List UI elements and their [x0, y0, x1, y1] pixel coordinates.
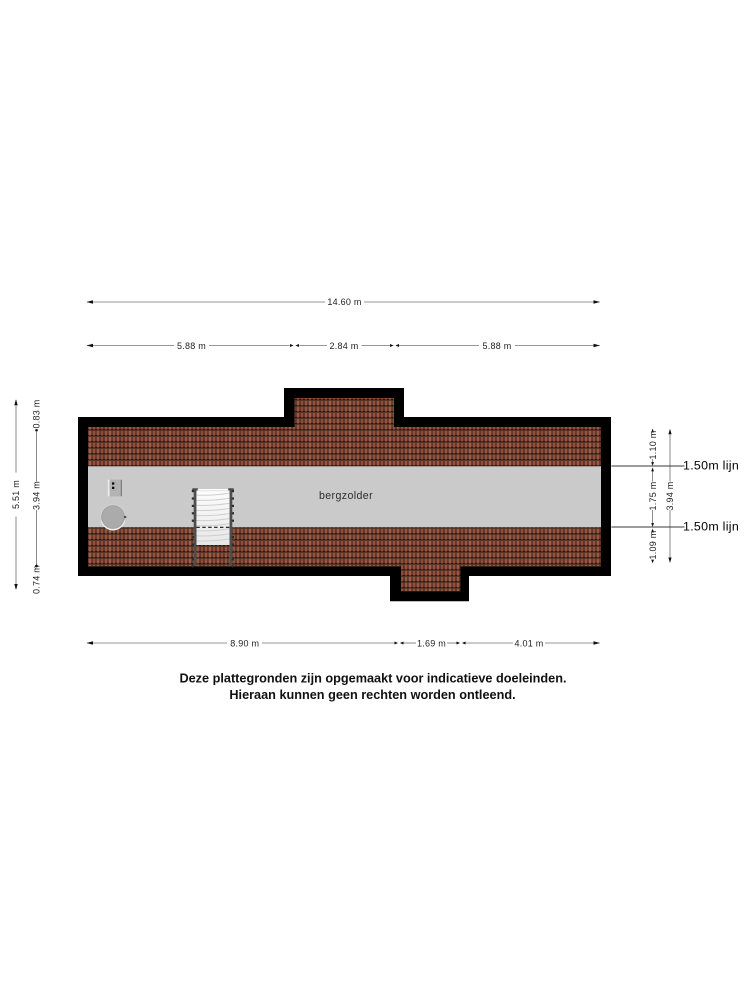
svg-text:1.09 m: 1.09 m [648, 530, 658, 559]
svg-text:1.50m lijn: 1.50m lijn [683, 459, 739, 473]
svg-text:3.94 m: 3.94 m [32, 481, 42, 510]
svg-text:5.88 m: 5.88 m [177, 341, 206, 351]
svg-text:5.88 m: 5.88 m [482, 341, 511, 351]
svg-text:3.94 m: 3.94 m [665, 481, 675, 510]
svg-text:1.69 m: 1.69 m [417, 639, 446, 649]
svg-text:bergzolder: bergzolder [319, 490, 373, 502]
svg-text:8.90 m: 8.90 m [230, 639, 259, 649]
svg-text:2.84 m: 2.84 m [329, 341, 358, 351]
svg-text:Deze plattegronden zijn opgema: Deze plattegronden zijn opgemaakt voor i… [179, 672, 566, 686]
svg-text:0.83 m: 0.83 m [32, 399, 42, 428]
svg-text:1.10 m: 1.10 m [648, 430, 658, 459]
svg-text:5.51 m: 5.51 m [11, 480, 21, 509]
svg-text:1.50m lijn: 1.50m lijn [683, 520, 739, 534]
svg-text:4.01 m: 4.01 m [514, 639, 543, 649]
svg-text:14.60 m: 14.60 m [327, 297, 361, 307]
svg-text:1.75 m: 1.75 m [648, 481, 658, 510]
svg-text:0.74 m: 0.74 m [32, 565, 42, 594]
svg-text:Hieraan kunnen geen rechten wo: Hieraan kunnen geen rechten worden ontle… [229, 688, 515, 702]
